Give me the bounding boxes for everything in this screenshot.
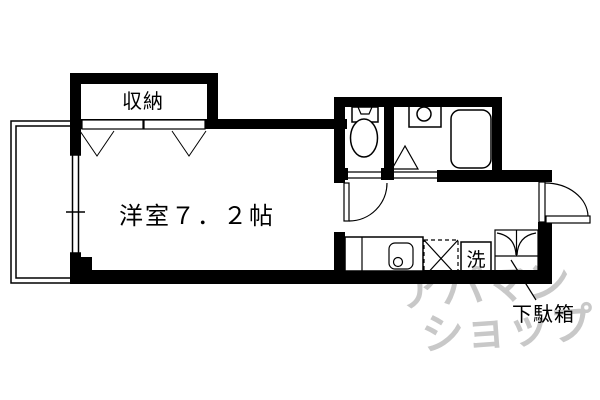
closet-door-panel [144,120,205,129]
toilet-fixture [351,107,379,157]
wall-outer-right-lower [538,222,552,284]
bathtub [451,110,491,168]
washbasin-faucet [417,107,431,121]
closet-doors [80,120,206,156]
toilet-tank-notch [358,107,372,114]
wall-closet-left [70,73,81,155]
shoe-cabinet-door-arc [517,233,536,255]
shoe-cabinet-door-arc [497,233,516,255]
bath-door-triangle [392,146,418,169]
entrance-door [539,182,590,223]
window-left [66,155,85,253]
wall-bath-bottom-band [437,170,552,182]
door-leaf [344,183,349,221]
entrance-door-leaf-open [546,216,590,223]
bathroom [451,110,491,168]
toilet-bowl [351,119,378,157]
closet-door-panel [82,120,143,129]
floorplan-drawing: 洗 収納 洋室７．２帖 下駄箱 [0,0,600,400]
floorplan-canvas: アパマン ショップ [0,0,600,400]
entrance-door-swing-arc [545,183,588,216]
wall-room-right-lower [334,232,345,284]
kitchen [345,237,423,271]
closet-door-swing-mark [80,131,114,156]
wall-wet-top [334,97,502,107]
washing-machine-label: 洗 [466,249,485,271]
balcony-inner-line [16,126,70,278]
wall-bottom [70,270,552,284]
wall-bath-right [492,97,502,178]
entrance-door-leaf-closed [539,182,545,222]
kitchen-counter [345,237,423,271]
closet-label: 収納 [122,90,164,113]
balcony [11,121,70,283]
main-room-door [344,183,387,221]
main-room-label: 洋室７．２帖 [119,203,275,230]
shoe-cabinet-label: 下駄箱 [512,303,575,326]
door-swing-arc [349,183,387,221]
shoe-cabinet [495,230,538,300]
wall-closet-top [70,73,218,84]
closet-door-swing-mark [172,131,206,156]
balcony-outer-line [11,121,70,283]
wall-toilet-right [384,97,394,178]
wall-toilet-bottom-left-stub [334,168,348,180]
